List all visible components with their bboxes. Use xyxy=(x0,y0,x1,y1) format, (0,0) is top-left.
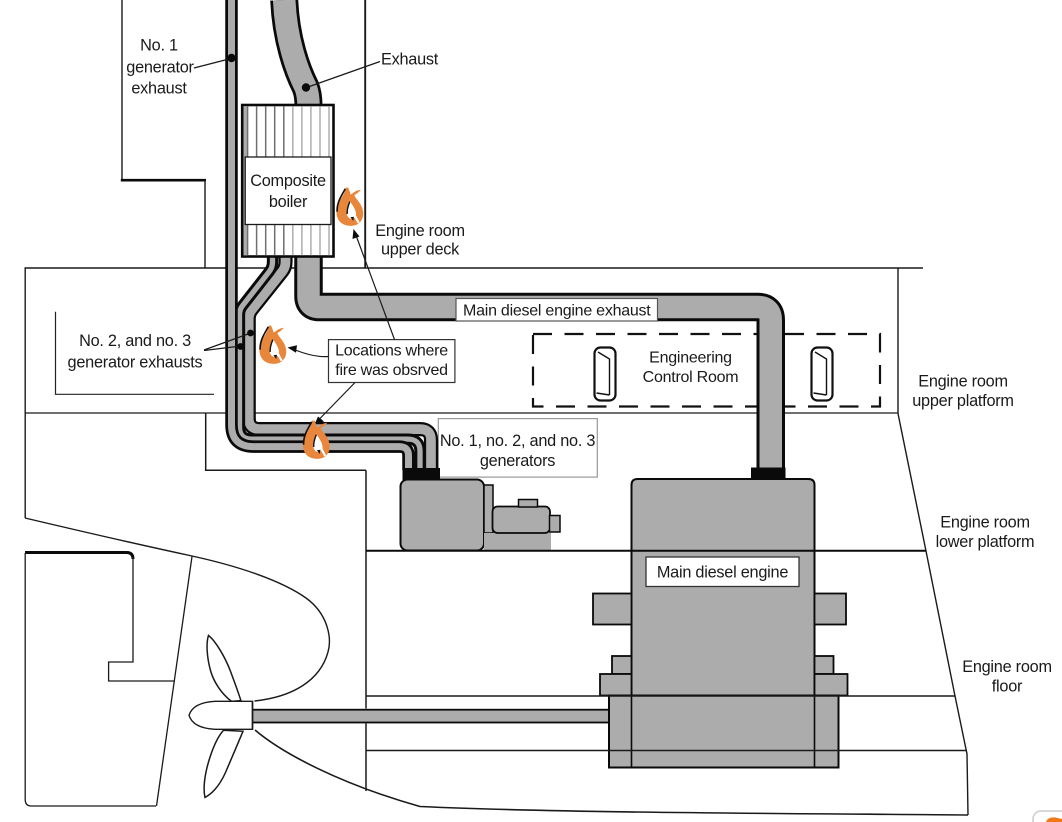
svg-text:Engine room: Engine room xyxy=(940,514,1030,532)
svg-text:upper platform: upper platform xyxy=(912,392,1013,410)
svg-text:Exhaust: Exhaust xyxy=(381,51,439,69)
svg-text:generators: generators xyxy=(480,452,555,470)
svg-text:No. 1, no. 2, and no. 3: No. 1, no. 2, and no. 3 xyxy=(440,432,596,450)
svg-text:boiler: boiler xyxy=(269,193,308,211)
svg-text:Engineering: Engineering xyxy=(649,350,732,367)
svg-text:Composite: Composite xyxy=(250,172,326,190)
svg-text:exhaust: exhaust xyxy=(131,80,187,98)
svg-text:Control Room: Control Room xyxy=(643,369,739,386)
svg-text:Locations where: Locations where xyxy=(335,343,448,360)
svg-text:No. 1: No. 1 xyxy=(140,37,178,55)
svg-text:Engine room: Engine room xyxy=(375,222,465,240)
svg-text:No. 2, and no. 3: No. 2, and no. 3 xyxy=(79,332,191,350)
svg-text:Engine room: Engine room xyxy=(962,658,1052,676)
svg-text:generator: generator xyxy=(126,59,194,77)
svg-text:fire was obsrved: fire was obsrved xyxy=(335,362,448,379)
svg-text:Main diesel engine exhaust: Main diesel engine exhaust xyxy=(463,303,651,320)
svg-text:floor: floor xyxy=(992,678,1023,696)
svg-text:lower platform: lower platform xyxy=(936,533,1035,551)
svg-text:Main diesel engine: Main diesel engine xyxy=(657,564,788,582)
svg-text:upper deck: upper deck xyxy=(381,241,460,259)
svg-text:Engine room: Engine room xyxy=(918,373,1008,391)
svg-text:generator exhausts: generator exhausts xyxy=(68,354,203,372)
